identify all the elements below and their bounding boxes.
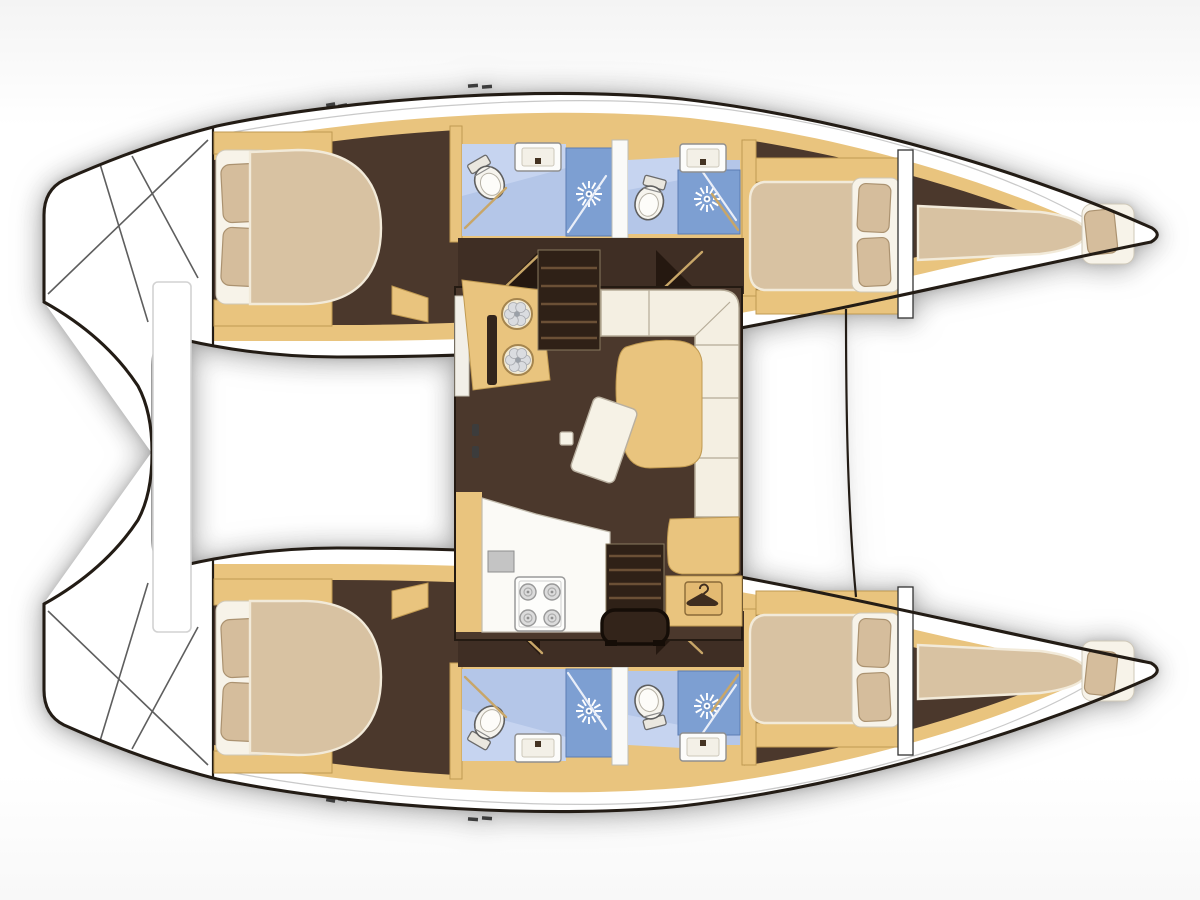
- catamaran-floorplan: [0, 0, 1200, 900]
- floorplan-canvas: [0, 0, 1200, 900]
- locker-handle: [472, 424, 479, 436]
- galley-wood-strip: [456, 492, 482, 632]
- locker-handle: [472, 446, 479, 458]
- entry-threshold: [602, 610, 668, 646]
- forward-crossbeam-line: [846, 309, 856, 597]
- salon: [455, 250, 742, 646]
- aft-crossbeam-platform: [153, 282, 191, 632]
- stove-burner-icon: [544, 584, 560, 600]
- galley-burner-block: [455, 280, 550, 396]
- aft-bench: [667, 517, 739, 574]
- stove-burner-icon: [520, 610, 536, 626]
- four-burner-stove: [515, 577, 565, 631]
- wardrobe: [666, 576, 742, 626]
- boat: [44, 84, 1157, 822]
- dining-table: [616, 340, 702, 468]
- companionway-stairs-starboard: [606, 544, 664, 618]
- burner-icon: [503, 345, 533, 375]
- companionway-stairs-port: [538, 250, 600, 350]
- stove-burner-icon: [520, 584, 536, 600]
- stove-burner-icon: [544, 610, 560, 626]
- burner-icon: [502, 299, 532, 329]
- fridge: [488, 551, 514, 572]
- stool: [560, 432, 573, 445]
